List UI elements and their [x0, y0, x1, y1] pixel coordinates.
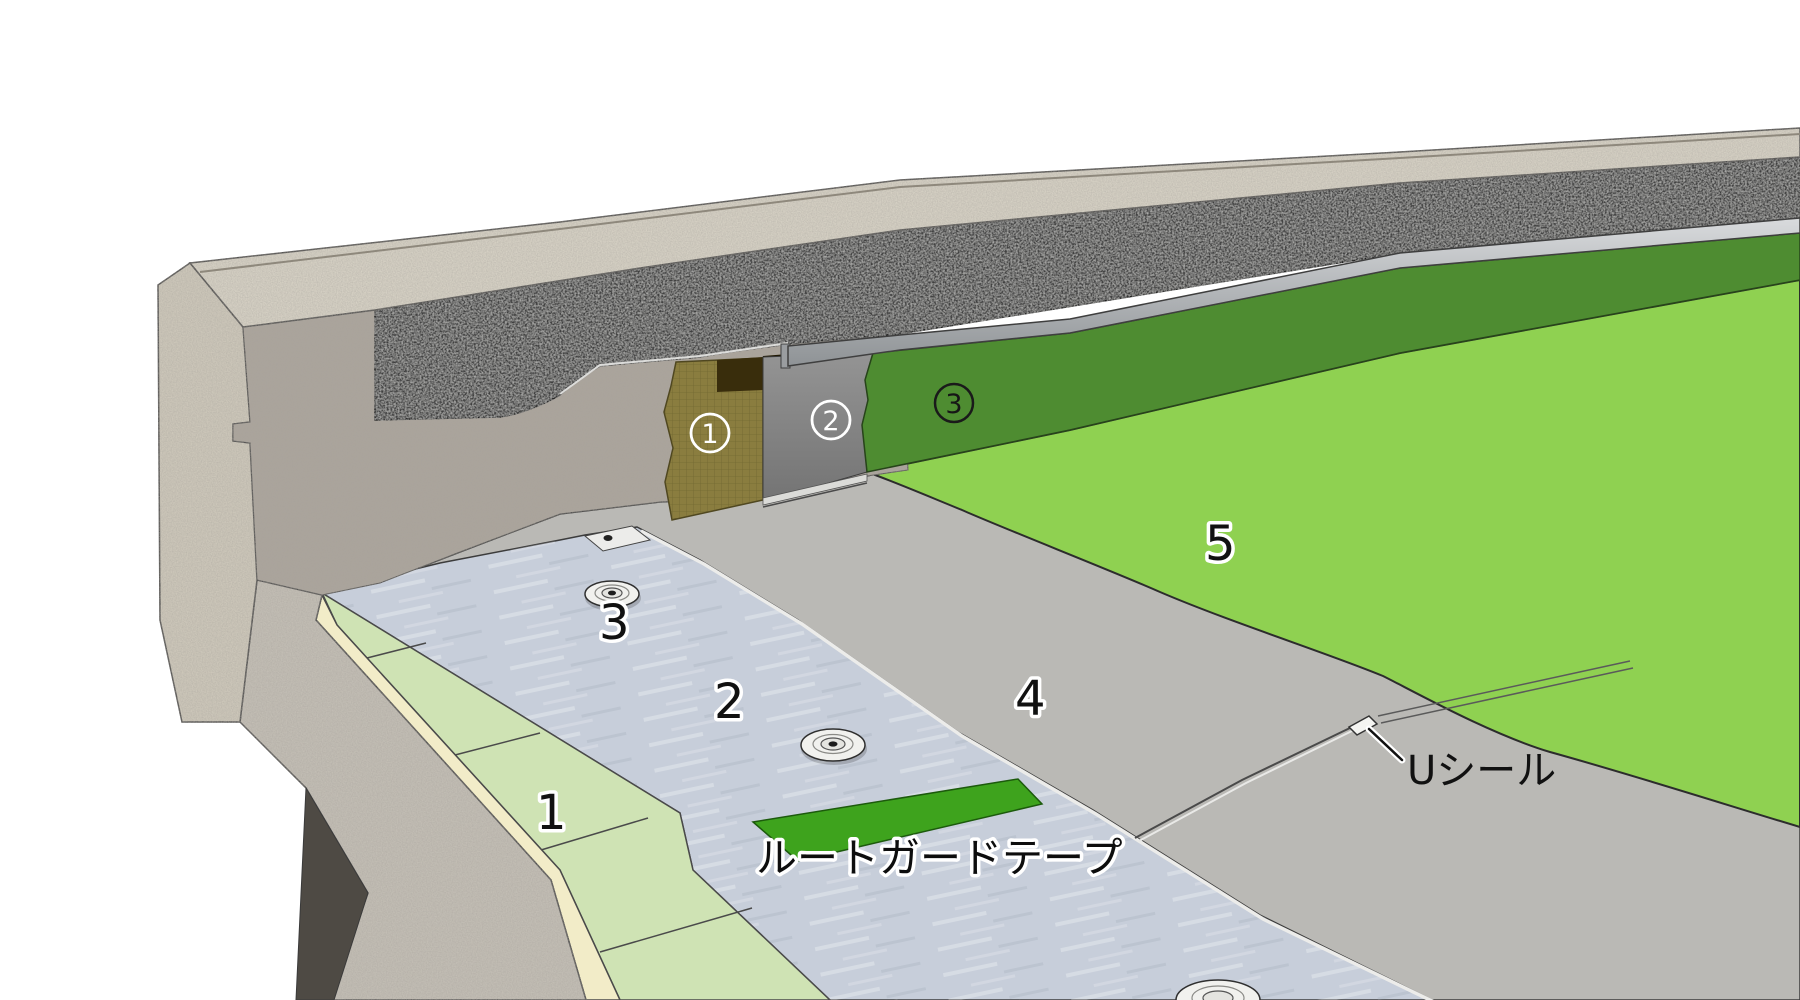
parapet-outer-face [158, 263, 257, 722]
fixing-plate-screw [604, 535, 613, 541]
disc-fastener-middle [801, 729, 867, 765]
circled-label-2-digit: 2 [822, 406, 839, 437]
label-layer-4: 4 [1015, 671, 1046, 727]
roof-detail-diagram: 1 2 3 4 5 1 2 3 ルートガードテープ Uシール [0, 0, 1800, 1000]
useal-label: Uシール [1407, 748, 1556, 794]
label-layer-3: 3 [599, 595, 630, 651]
label-layer-5: 5 [1205, 516, 1236, 572]
disc-center [829, 741, 838, 746]
recess-shadow [717, 357, 763, 392]
circled-label-1-digit: 1 [701, 419, 718, 450]
tape-label: ルートガードテープ [756, 834, 1123, 882]
label-layer-1: 1 [536, 785, 567, 841]
disc-ring-inner [1203, 991, 1233, 1000]
label-layer-2: 2 [714, 674, 745, 730]
circled-label-3-digit: 3 [945, 389, 962, 420]
